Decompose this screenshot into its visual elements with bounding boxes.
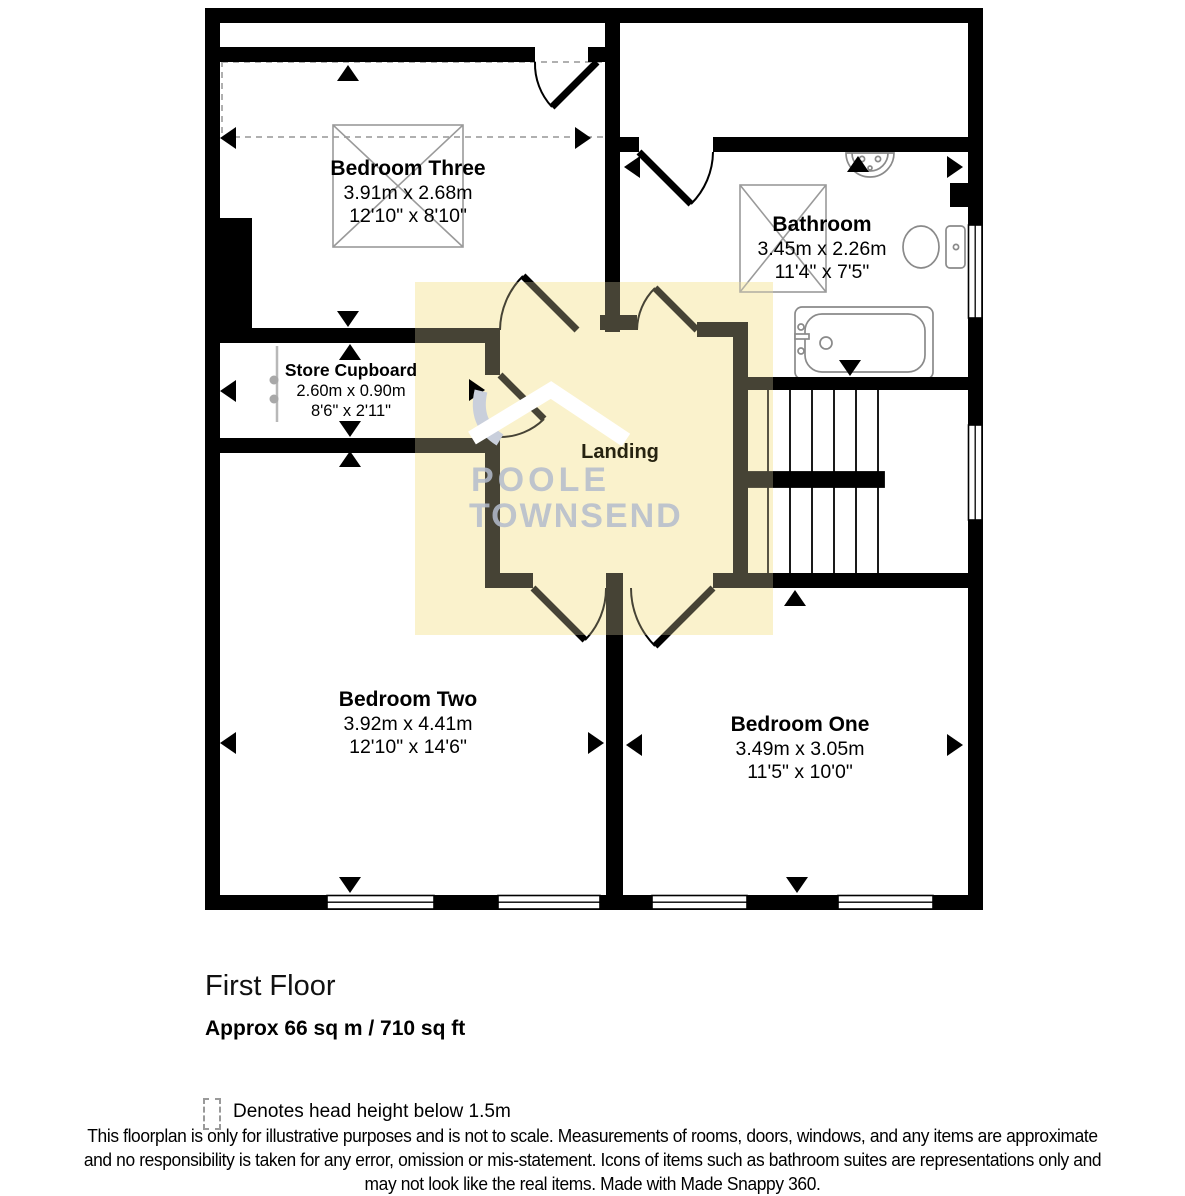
measure-arrow-down-icon bbox=[339, 421, 361, 437]
wall-segment bbox=[588, 47, 605, 62]
measure-arrow-down-icon bbox=[786, 877, 808, 893]
room-label-bedroom-two: Bedroom Two 3.92m x 4.41m 12'10" x 14'6" bbox=[339, 687, 477, 760]
measure-arrow-up-icon bbox=[337, 65, 359, 81]
bathtub-icon bbox=[795, 307, 933, 379]
measure-arrow-right-icon bbox=[947, 734, 963, 756]
watermark-line1: POOLE bbox=[471, 461, 610, 500]
room-imperial-dims: 11'4" x 7'5" bbox=[758, 261, 887, 285]
floorplan-drawing bbox=[0, 0, 1185, 1196]
room-imperial-dims: 8'6" x 2'11" bbox=[285, 401, 417, 421]
measure-arrow-up-icon bbox=[784, 590, 806, 606]
disclaimer-line: This floorplan is only for illustrative … bbox=[36, 1124, 1150, 1148]
window bbox=[327, 896, 434, 910]
room-metric-dims: 2.60m x 0.90m bbox=[285, 381, 417, 401]
legend-text: Denotes head height below 1.5m bbox=[233, 1101, 511, 1123]
disclaimer: This floorplan is only for illustrative … bbox=[0, 1124, 1185, 1196]
floor-area-text: Approx 66 sq m / 710 sq ft bbox=[205, 1017, 465, 1041]
room-name: Bedroom Two bbox=[339, 687, 477, 713]
window bbox=[652, 896, 747, 910]
measure-arrow-up-icon bbox=[339, 344, 361, 360]
measure-arrow-right-icon bbox=[588, 732, 604, 754]
disclaimer-line: and no responsibility is taken for any e… bbox=[36, 1148, 1150, 1172]
measure-arrow-up-icon bbox=[339, 451, 361, 467]
wall-segment bbox=[713, 137, 968, 152]
measure-arrow-right-icon bbox=[947, 156, 963, 178]
room-metric-dims: 3.49m x 3.05m bbox=[731, 738, 870, 762]
room-imperial-dims: 11'5" x 10'0" bbox=[731, 761, 870, 785]
watermark-line2: TOWNSEND bbox=[469, 497, 683, 536]
cupboard-door bbox=[270, 346, 279, 422]
room-name: Bedroom Three bbox=[330, 156, 485, 182]
toilet-icon bbox=[903, 226, 965, 268]
window bbox=[969, 225, 983, 318]
door bbox=[535, 62, 597, 107]
window bbox=[838, 896, 933, 910]
page-title: First Floor bbox=[205, 970, 336, 1003]
room-metric-dims: 3.91m x 2.68m bbox=[330, 182, 485, 206]
room-metric-dims: 3.92m x 4.41m bbox=[339, 713, 477, 737]
wall-segment bbox=[205, 8, 220, 910]
room-name: Bedroom One bbox=[731, 712, 870, 738]
wall-segment bbox=[220, 47, 535, 62]
wall-segment bbox=[205, 8, 983, 23]
room-label-bedroom-one: Bedroom One 3.49m x 3.05m 11'5" x 10'0" bbox=[731, 712, 870, 785]
room-name: Store Cupboard bbox=[285, 360, 417, 381]
room-imperial-dims: 12'10" x 8'10" bbox=[330, 205, 485, 229]
room-metric-dims: 3.45m x 2.26m bbox=[758, 238, 887, 262]
window bbox=[969, 425, 983, 520]
room-name: Bathroom bbox=[758, 212, 887, 238]
chimney-breast bbox=[205, 218, 252, 333]
measure-arrow-down-icon bbox=[337, 311, 359, 327]
room-label-bathroom: Bathroom 3.45m x 2.26m 11'4" x 7'5" bbox=[758, 212, 887, 285]
disclaimer-line: may not look like the real items. Made w… bbox=[36, 1172, 1150, 1196]
measure-arrow-left-icon bbox=[624, 156, 640, 178]
room-label-bedroom-three: Bedroom Three 3.91m x 2.68m 12'10" x 8'1… bbox=[330, 156, 485, 229]
measure-arrow-right-icon bbox=[575, 127, 591, 149]
room-name: Landing bbox=[581, 441, 659, 463]
window bbox=[498, 896, 600, 910]
wall-segment bbox=[620, 137, 639, 152]
door bbox=[639, 152, 713, 204]
measure-arrow-left-icon bbox=[626, 734, 642, 756]
measure-arrow-left-icon bbox=[220, 732, 236, 754]
measure-arrow-left-icon bbox=[220, 380, 236, 402]
measure-arrow-down-icon bbox=[339, 877, 361, 893]
floorplan-page: Bedroom Three 3.91m x 2.68m 12'10" x 8'1… bbox=[0, 0, 1185, 1196]
room-imperial-dims: 12'10" x 14'6" bbox=[339, 736, 477, 760]
room-label-store-cupboard: Store Cupboard 2.60m x 0.90m 8'6" x 2'11… bbox=[285, 360, 417, 422]
pipe-boxing bbox=[950, 183, 968, 207]
